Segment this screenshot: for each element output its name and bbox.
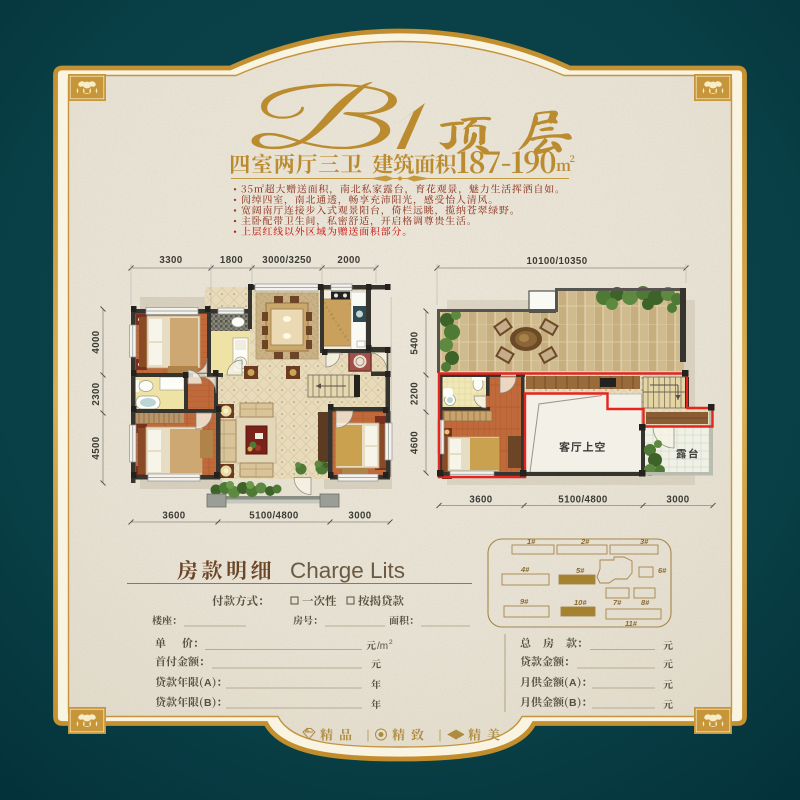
svg-text:9#: 9#: [520, 597, 529, 606]
svg-text:5#: 5#: [576, 566, 585, 575]
svg-text:3000: 3000: [666, 495, 689, 506]
svg-text:B: B: [569, 697, 577, 709]
svg-text:4500: 4500: [91, 436, 102, 459]
svg-text:3600: 3600: [469, 495, 492, 506]
svg-text:2#: 2#: [580, 537, 590, 546]
svg-text:10100/10350: 10100/10350: [527, 256, 588, 267]
svg-text:Charge Lits: Charge Lits: [290, 558, 405, 583]
svg-text:8#: 8#: [641, 598, 650, 607]
svg-text:3#: 3#: [640, 537, 649, 546]
svg-text:2300: 2300: [91, 382, 102, 405]
svg-text:2: 2: [389, 639, 393, 646]
svg-text:3000: 3000: [348, 511, 371, 522]
svg-text:3600: 3600: [162, 511, 185, 522]
svg-text:2200: 2200: [410, 382, 421, 405]
svg-text:/m: /m: [377, 641, 388, 652]
svg-text:10#: 10#: [574, 598, 587, 607]
svg-text:1800: 1800: [220, 255, 243, 266]
svg-text:5400: 5400: [410, 331, 421, 354]
svg-text:2000: 2000: [337, 255, 360, 266]
svg-text:4000: 4000: [91, 330, 102, 353]
svg-text:5100/4800: 5100/4800: [249, 511, 298, 522]
svg-text:6#: 6#: [658, 566, 667, 575]
svg-text:1#: 1#: [527, 537, 536, 546]
svg-text:A: A: [569, 677, 577, 689]
svg-text:4#: 4#: [520, 565, 530, 574]
svg-text:7#: 7#: [613, 598, 622, 607]
svg-text:B: B: [204, 697, 212, 709]
svg-text:4600: 4600: [410, 431, 421, 454]
svg-text:A: A: [204, 677, 212, 689]
svg-text:3300: 3300: [159, 255, 182, 266]
svg-text:3000/3250: 3000/3250: [262, 255, 311, 266]
svg-text:11#: 11#: [625, 619, 638, 628]
svg-text:5100/4800: 5100/4800: [558, 495, 607, 506]
